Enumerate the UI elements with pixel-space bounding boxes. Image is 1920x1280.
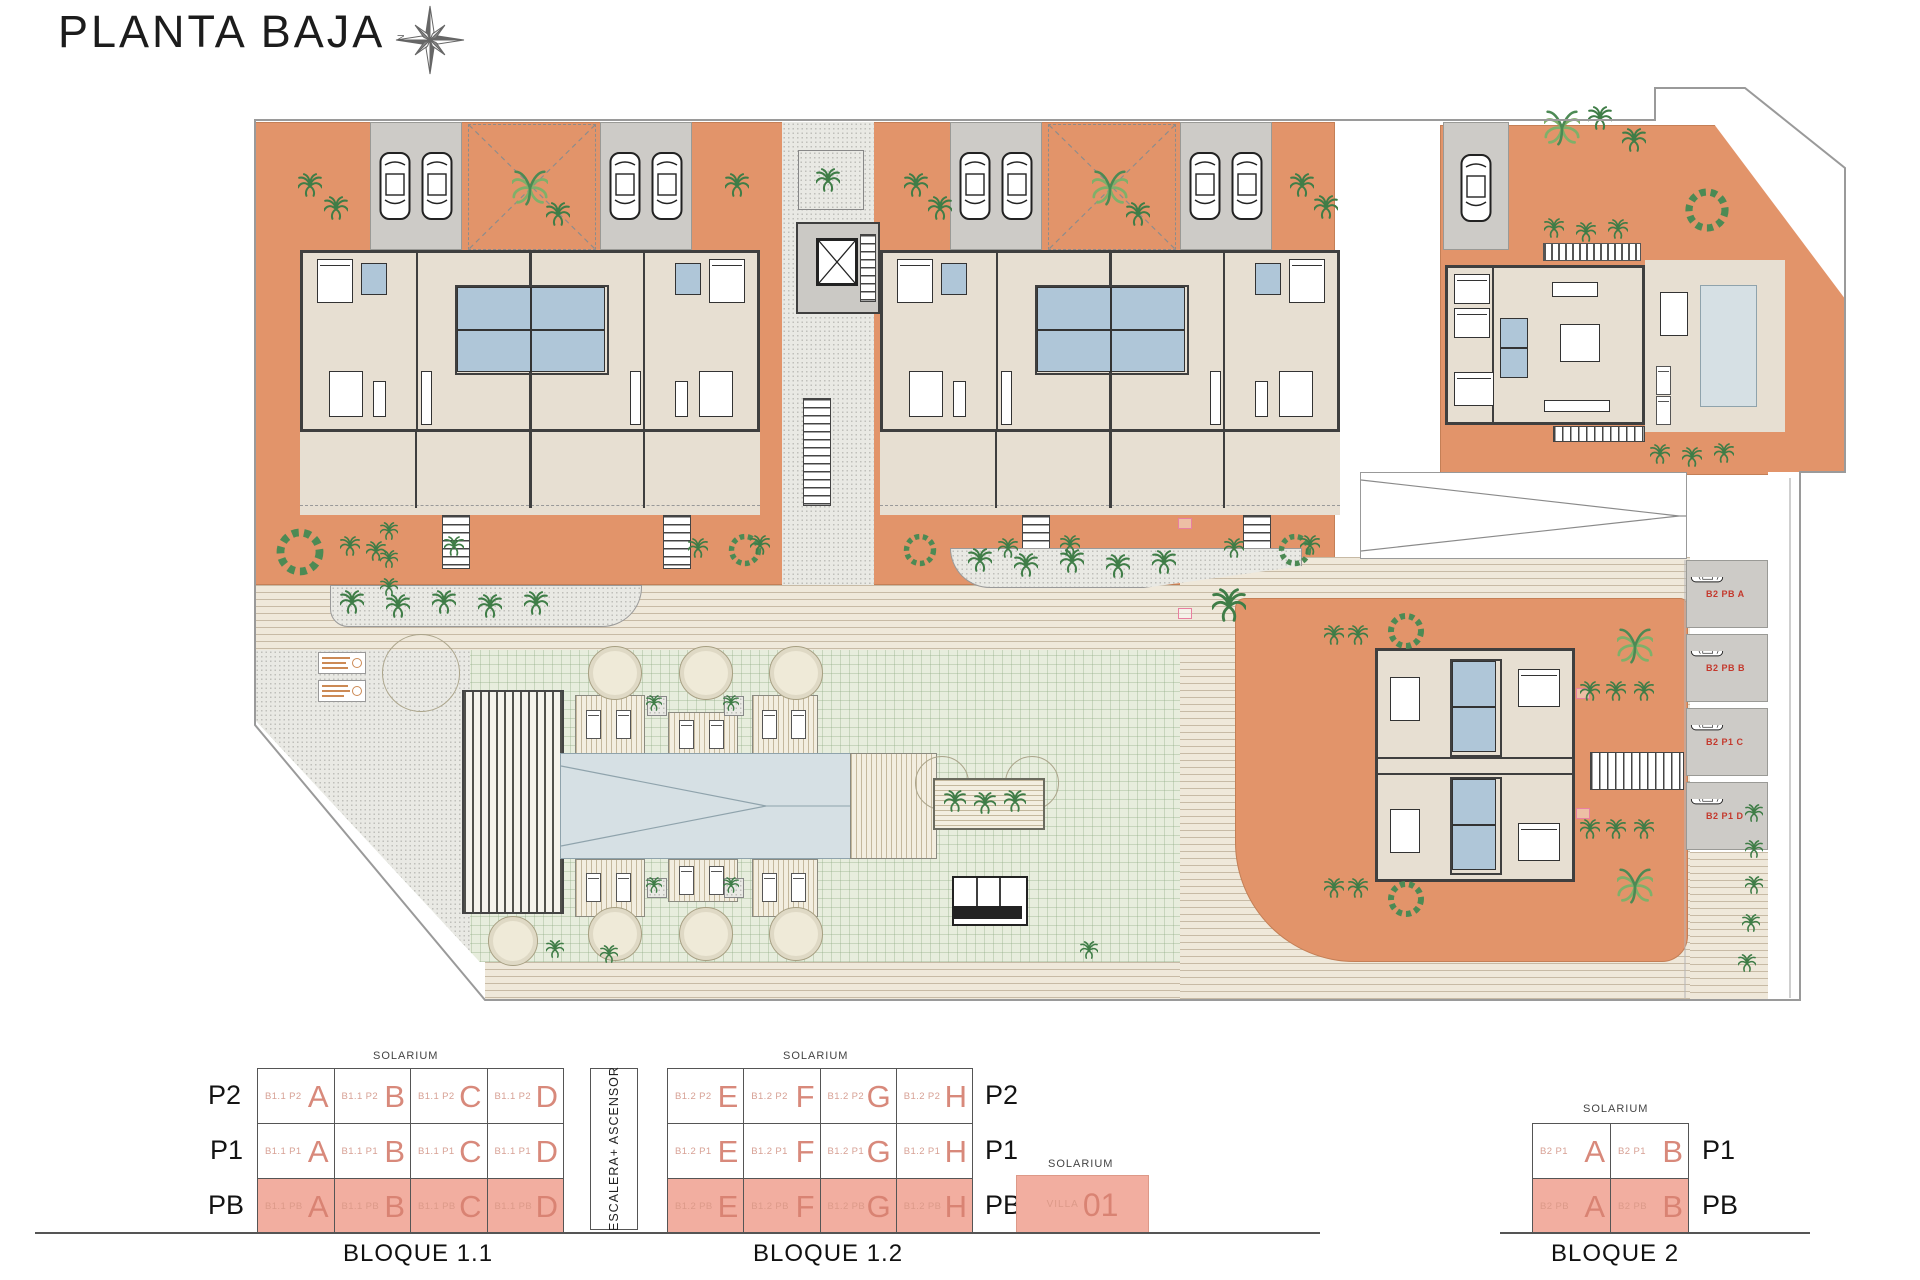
palm-icon	[1576, 222, 1596, 242]
legend-baseline	[35, 1232, 1320, 1234]
bed-icon	[1454, 372, 1494, 406]
palm-icon	[546, 940, 564, 958]
tree-ring-icon	[902, 532, 938, 568]
parking-space-label: B2 PB A	[1706, 589, 1745, 599]
lounger-icon	[709, 720, 724, 749]
palm-icon	[298, 173, 322, 197]
legend-grid-bloque11: B1.1 P2A B1.1 P2B B1.1 P2C B1.1 P2D B1.1…	[257, 1068, 564, 1234]
fern-icon	[1617, 868, 1653, 904]
legend-title-bloque12: BLOQUE 1.2	[753, 1240, 903, 1268]
car-icon	[608, 150, 642, 222]
palm-icon	[1014, 553, 1038, 577]
solarium-label-bloque12: SOLARIUM	[783, 1050, 848, 1062]
dining-table-icon	[329, 371, 363, 417]
bed-icon	[1518, 669, 1560, 707]
equipment-note	[318, 680, 366, 702]
compass-north-letter: N	[396, 35, 406, 42]
car-icon	[958, 150, 992, 222]
legend-unit-cell: B1.2 P1E	[668, 1124, 743, 1178]
car-icon	[1188, 150, 1222, 222]
car-icon	[1000, 150, 1034, 222]
solarium-label-villa: SOLARIUM	[1048, 1158, 1113, 1170]
elevator-shaft-icon	[816, 238, 858, 286]
legend-unit-cell: B1.1 P2D	[488, 1069, 564, 1123]
fern-icon	[1617, 628, 1653, 664]
legend-unit-cell: B1.2 P1H	[897, 1124, 972, 1178]
lounger-icon	[679, 866, 694, 895]
palm-icon	[1224, 538, 1244, 558]
tree-icon	[769, 646, 823, 700]
dining-table-icon	[1560, 324, 1600, 362]
floor-plan-page: PLANTA BAJA N	[0, 0, 1920, 1280]
palm-icon	[1650, 444, 1670, 464]
bed-icon	[1454, 308, 1490, 338]
tree-icon	[488, 916, 538, 966]
legend-unit-cell: B2 P1B	[1611, 1124, 1688, 1178]
lounger-icon	[762, 710, 777, 739]
building-bloque11	[300, 250, 760, 432]
corridor-wall	[1378, 757, 1572, 759]
party-wall	[643, 430, 645, 508]
palm-icon	[968, 548, 992, 572]
sofa-icon	[1552, 282, 1598, 297]
palm-icon	[1290, 173, 1314, 197]
road-right	[1768, 472, 1850, 1000]
legend-unit-cell: B1.1 P2C	[411, 1069, 487, 1123]
tree-icon	[769, 907, 823, 961]
bathroom	[361, 263, 387, 295]
swimming-pool	[560, 753, 852, 859]
legend-unit-cell: B1.1 P1D	[488, 1124, 564, 1178]
unit-divider	[416, 253, 418, 429]
pergola	[462, 690, 564, 914]
legend-unit-cell: B1.1 P1B	[335, 1124, 411, 1178]
unit-divider	[1223, 253, 1225, 429]
tree-ring-icon	[274, 526, 326, 578]
palm-icon	[723, 877, 739, 893]
bed-icon	[709, 259, 745, 303]
legend-unit-cell-highlighted: B1.2 PBG	[821, 1179, 896, 1233]
core-stairs	[860, 234, 876, 302]
villa-pergola	[1543, 243, 1641, 261]
bathroom	[531, 330, 605, 372]
palm-icon	[1348, 878, 1368, 898]
palm-icon	[816, 168, 840, 192]
palm-icon	[1300, 535, 1320, 555]
car-icon	[1230, 150, 1264, 222]
bloque2-stairs	[1590, 752, 1684, 790]
villa-building	[1445, 265, 1645, 425]
palm-icon	[646, 695, 662, 711]
palm-icon	[380, 550, 398, 568]
tree-ring-icon	[1386, 879, 1426, 919]
bathroom	[1255, 263, 1281, 295]
palm-icon	[524, 591, 548, 615]
bed-icon	[1518, 823, 1560, 861]
palm-icon	[386, 594, 410, 618]
legend-unit-cell: B1.1 P1C	[411, 1124, 487, 1178]
legend-grid-bloque2: B2 P1A B2 P1B B2 PBA B2 PBB	[1532, 1123, 1689, 1234]
bathroom	[457, 330, 531, 372]
party-wall	[415, 430, 417, 508]
palm-icon	[974, 792, 996, 814]
fern-icon	[512, 170, 548, 206]
palm-icon	[1745, 840, 1763, 858]
legend-title-bloque2: BLOQUE 2	[1551, 1240, 1679, 1268]
villa-pool	[1700, 285, 1757, 407]
bathroom	[1111, 287, 1185, 330]
building-bloque12	[880, 250, 1340, 432]
page-title: PLANTA BAJA	[58, 6, 385, 58]
palm-icon	[1606, 819, 1626, 839]
parking-space-label: B2 P1 C	[1706, 737, 1744, 747]
palm-icon	[1212, 588, 1246, 622]
dining-table-icon	[1390, 677, 1420, 721]
legend-unit-cell: B2 P1A	[1533, 1124, 1610, 1178]
tree-ring-icon	[1386, 611, 1426, 651]
car-icon	[420, 150, 454, 222]
legend-unit-cell-highlighted: B1.2 PBH	[897, 1179, 972, 1233]
bed-icon	[1289, 259, 1325, 303]
palm-icon	[723, 695, 739, 711]
tree-ring-icon	[1683, 186, 1731, 234]
legend-grid-bloque12: B1.2 P2E B1.2 P2F B1.2 P2G B1.2 P2H B1.2…	[667, 1068, 973, 1234]
floor-label-pb: PB	[1702, 1190, 1738, 1221]
bathroom	[1452, 707, 1496, 752]
palm-icon	[432, 590, 456, 614]
palm-icon	[380, 578, 398, 596]
sofa-icon	[373, 381, 386, 417]
dining-table-icon	[909, 371, 943, 417]
floor-label-pb: PB	[208, 1190, 244, 1221]
palm-icon	[546, 202, 570, 226]
legend-unit-cell-highlighted: B1.2 PBF	[744, 1179, 819, 1233]
lounger-icon	[616, 710, 631, 739]
dining-table-icon	[1390, 809, 1420, 853]
elevator-room	[796, 222, 880, 314]
sofa-icon	[675, 381, 688, 417]
bathroom	[1111, 330, 1185, 372]
paved-band-bottom	[485, 962, 1180, 1000]
solarium-label-bloque2: SOLARIUM	[1583, 1103, 1648, 1115]
lounger-icon	[586, 710, 601, 739]
bathroom	[675, 263, 701, 295]
bathroom	[1500, 318, 1528, 348]
palm-icon	[1324, 878, 1344, 898]
legend-unit-cell-highlighted: B2 PBA	[1533, 1179, 1610, 1233]
sofa-icon	[1255, 381, 1268, 417]
palm-icon	[1314, 195, 1338, 219]
tree-icon	[679, 907, 733, 961]
lounger-icon	[791, 710, 806, 739]
vehicle-ramp	[1360, 472, 1687, 559]
solarium-label-bloque11: SOLARIUM	[373, 1050, 438, 1062]
bathroom	[531, 287, 605, 330]
palm-icon	[600, 945, 618, 963]
palm-icon	[750, 535, 770, 555]
ramp-lines	[1361, 473, 1686, 558]
kitchen-counter	[1210, 371, 1221, 425]
parking-space-label: B2 PB B	[1706, 663, 1745, 673]
palm-icon	[1544, 218, 1564, 238]
dining-table-icon	[699, 371, 733, 417]
bathroom	[1452, 825, 1496, 870]
palm-icon	[1745, 876, 1763, 894]
legend-unit-cell: B1.2 P1G	[821, 1124, 896, 1178]
garden-stairs	[663, 515, 691, 569]
palm-icon	[1126, 202, 1150, 226]
bathroom	[941, 263, 967, 295]
party-wall	[1109, 430, 1112, 508]
sofa-icon	[953, 381, 966, 417]
bathroom	[1037, 330, 1111, 372]
sun-deck	[668, 712, 738, 755]
legend-unit-cell-highlighted: B1.2 PBE	[668, 1179, 743, 1233]
palm-icon	[1742, 914, 1760, 932]
pool-depth-lines	[561, 754, 851, 858]
wc-divider	[999, 878, 1001, 906]
floor-label-p1: P1	[1702, 1135, 1735, 1166]
palm-icon	[1622, 128, 1646, 152]
lounger-icon	[586, 873, 601, 902]
bathroom	[457, 287, 531, 330]
palm-icon	[904, 173, 928, 197]
plan-marker	[1178, 518, 1192, 529]
legend-unit-cell: B1.2 P1F	[744, 1124, 819, 1178]
bed-icon	[1454, 274, 1490, 304]
wet-core	[1035, 285, 1189, 375]
palm-icon	[1324, 625, 1344, 645]
floor-label-p1: P1	[985, 1135, 1018, 1166]
lounger-icon	[791, 873, 806, 902]
legend-unit-cell-highlighted: B1.1 PBC	[411, 1179, 487, 1233]
palm-icon	[340, 590, 364, 614]
tree-icon	[679, 646, 733, 700]
building-bloque2	[1375, 648, 1575, 882]
party-wall	[995, 430, 997, 508]
unit-divider	[996, 253, 998, 429]
palm-icon	[1682, 447, 1702, 467]
kitchen-counter	[630, 371, 641, 425]
palm-icon	[1634, 819, 1654, 839]
lounger-icon	[1656, 396, 1671, 425]
wc-building	[952, 876, 1028, 926]
car-icon	[378, 150, 412, 222]
palm-icon	[478, 594, 502, 618]
villa-stairs	[1553, 426, 1645, 442]
party-wall	[1223, 430, 1225, 508]
car-icon	[1459, 152, 1493, 224]
legend-title-bloque11: BLOQUE 1.1	[343, 1240, 493, 1268]
palm-icon	[1745, 804, 1763, 822]
palm-icon	[1060, 549, 1084, 573]
compass-rose-icon: N	[392, 2, 468, 78]
legend-unit-cell: B1.2 P2G	[821, 1069, 896, 1123]
outdoor-table-icon	[1660, 292, 1688, 336]
palm-icon	[1580, 681, 1600, 701]
palm-icon	[1348, 625, 1368, 645]
plan-marker	[1178, 608, 1192, 619]
fern-icon	[1544, 110, 1580, 146]
legend-escalera-box: ESCALERA+ ASCENSOR	[590, 1068, 638, 1230]
legend-unit-cell: B1.2 P2E	[668, 1069, 743, 1123]
palm-icon	[928, 196, 952, 220]
dining-table-icon	[1279, 371, 1313, 417]
bed-icon	[897, 259, 933, 303]
kitchen-counter	[421, 371, 432, 425]
sun-deck	[575, 695, 645, 755]
kitchen-counter	[1544, 400, 1610, 412]
wet-core	[1450, 659, 1502, 757]
wet-core	[1450, 777, 1502, 875]
wet-core	[455, 285, 609, 375]
equipment-note	[318, 652, 366, 674]
lounger-icon	[679, 720, 694, 749]
floor-label-p1: P1	[210, 1135, 243, 1166]
palm-icon	[725, 173, 749, 197]
legend-unit-cell-highlighted: B1.1 PBD	[488, 1179, 564, 1233]
palm-icon	[944, 790, 966, 812]
legend-unit-cell: B1.1 P2A	[258, 1069, 334, 1123]
palm-icon	[688, 538, 708, 558]
legend-unit-cell-highlighted: B1.1 PBA	[258, 1179, 334, 1233]
palm-icon	[380, 522, 398, 540]
palm-icon	[1580, 819, 1600, 839]
palm-icon	[1588, 106, 1612, 130]
lounger-icon	[1656, 366, 1671, 395]
wc-divider	[976, 878, 978, 906]
lounger-icon	[616, 873, 631, 902]
party-wall	[529, 430, 532, 508]
palm-icon	[1634, 681, 1654, 701]
palm-icon	[324, 196, 348, 220]
long-stairs-to-pool	[803, 398, 831, 506]
bed-icon	[317, 259, 353, 303]
palm-icon	[1606, 681, 1626, 701]
palm-icon	[1714, 443, 1734, 463]
floor-label-p2: P2	[208, 1080, 241, 1111]
legend-unit-cell: B1.2 P2F	[744, 1069, 819, 1123]
sun-deck	[752, 695, 818, 755]
legend-baseline	[1500, 1232, 1810, 1234]
legend-unit-cell-highlighted: B2 PBB	[1611, 1179, 1688, 1233]
bathroom	[1037, 287, 1111, 330]
legend-villa-box: VILLA01	[1016, 1175, 1149, 1234]
palm-icon	[1738, 954, 1756, 972]
legend-unit-cell-highlighted: B1.1 PBB	[335, 1179, 411, 1233]
floor-label-p2: P2	[985, 1080, 1018, 1111]
kitchen-counter	[1001, 371, 1012, 425]
bathroom	[1500, 348, 1528, 378]
bathroom	[1452, 779, 1496, 825]
parking-space-label: B2 P1 D	[1706, 811, 1744, 821]
tree-icon	[588, 646, 642, 700]
car-icon	[650, 150, 684, 222]
lounger-icon	[709, 866, 724, 895]
palm-icon	[340, 536, 360, 556]
palm-icon	[646, 877, 662, 893]
legend-unit-cell: B1.1 P2B	[335, 1069, 411, 1123]
palm-icon	[1152, 550, 1176, 574]
palm-icon	[444, 536, 464, 556]
plan-marker	[1576, 808, 1590, 819]
lounger-icon	[762, 873, 777, 902]
legend-unit-cell: B1.1 P1A	[258, 1124, 334, 1178]
bathroom	[1452, 661, 1496, 707]
corridor-wall	[1378, 773, 1572, 775]
palm-icon	[1004, 790, 1026, 812]
palm-icon	[1608, 219, 1628, 239]
palm-icon	[1080, 941, 1098, 959]
unit-divider	[643, 253, 645, 429]
fern-icon	[1092, 170, 1128, 206]
legend-unit-cell: B1.2 P2H	[897, 1069, 972, 1123]
wc-fixture-strip	[954, 906, 1022, 919]
palm-icon	[1106, 554, 1130, 578]
tree-icon	[382, 634, 460, 712]
